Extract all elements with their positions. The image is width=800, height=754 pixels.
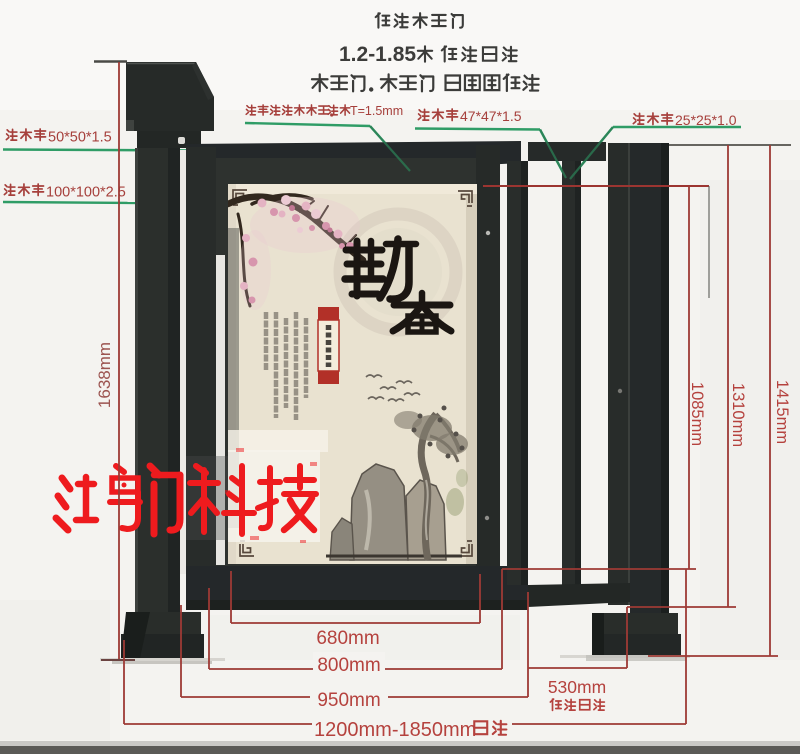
svg-text:800mm: 800mm — [317, 655, 380, 676]
svg-text:50*50*1.5: 50*50*1.5 — [48, 130, 112, 146]
svg-text:100*100*2.5: 100*100*2.5 — [46, 185, 126, 201]
svg-text:47*47*1.5: 47*47*1.5 — [460, 108, 522, 124]
svg-text:1085mm: 1085mm — [688, 382, 706, 446]
svg-text:1200mm-1850mm: 1200mm-1850mm — [314, 719, 476, 741]
svg-text:1310mm: 1310mm — [729, 383, 747, 447]
svg-text:680mm: 680mm — [316, 628, 379, 649]
svg-text:1.2-1.85: 1.2-1.85 — [339, 43, 416, 66]
svg-text:530mm: 530mm — [548, 677, 606, 697]
svg-text:T=1.5mm: T=1.5mm — [350, 104, 403, 118]
svg-text:1638mm: 1638mm — [95, 342, 114, 408]
svg-text:950mm: 950mm — [317, 690, 380, 711]
svg-text:25*25*1.0: 25*25*1.0 — [675, 112, 737, 128]
svg-text:1415mm: 1415mm — [773, 380, 791, 444]
